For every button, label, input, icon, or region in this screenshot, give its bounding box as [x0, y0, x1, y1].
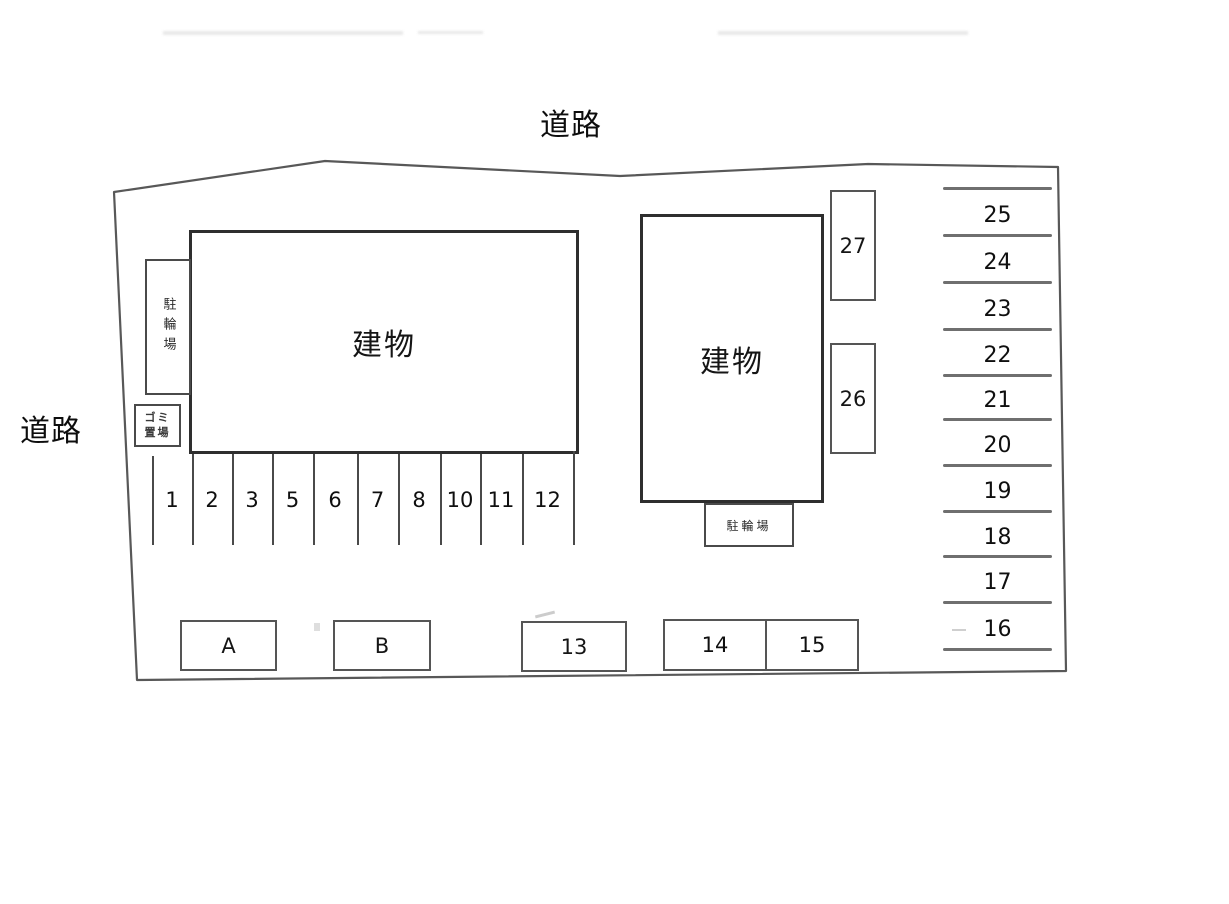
- parking-space-19: 19: [943, 467, 1052, 513]
- bicycle-parking-2: 駐輪場: [704, 503, 794, 547]
- parking-space-11: 11: [482, 455, 520, 545]
- bicycle-parking-1-label: 駐輪場: [159, 297, 178, 357]
- parking-space-A-label: A: [221, 634, 235, 658]
- parking-space-14-15: 14 15: [663, 619, 859, 671]
- parking-divider-line: [573, 451, 575, 545]
- parking-space-26-label: 26: [840, 387, 867, 411]
- parking-space-13-label: 13: [561, 635, 588, 659]
- parking-space-26: 26: [830, 343, 876, 454]
- building-1: 建物: [189, 230, 579, 454]
- parking-space-21: 21: [943, 377, 1052, 421]
- garbage-area: ゴミ 置場: [134, 404, 181, 447]
- parking-space-27: 27: [830, 190, 876, 301]
- parking-space-A: A: [180, 620, 277, 671]
- building-2-label: 建物: [700, 337, 764, 381]
- parking-space-B: B: [333, 620, 431, 671]
- parking-space-8: 8: [400, 455, 438, 545]
- building-1-label: 建物: [352, 320, 416, 364]
- parking-space-24: 24: [943, 237, 1052, 284]
- parking-space-10: 10: [442, 455, 478, 545]
- garbage-area-label-line2: 置場: [145, 426, 171, 441]
- parking-space-13: 13: [521, 621, 627, 672]
- parking-space-18: 18: [943, 513, 1052, 558]
- garbage-area-label-line1: ゴミ: [145, 411, 171, 426]
- road-label-top: 道路: [540, 100, 602, 144]
- site-plan: 道路 道路 建物 建物 駐輪場 ゴミ 置場 駐輪場 27 26 1 2 3: [0, 0, 1229, 904]
- parking-space-15: 15: [767, 621, 857, 669]
- parking-space-23: 23: [943, 284, 1052, 331]
- parking-space-20: 20: [943, 421, 1052, 467]
- parking-space-6: 6: [315, 455, 355, 545]
- parking-space-7: 7: [359, 455, 396, 545]
- parking-space-25: 25: [943, 190, 1052, 237]
- bicycle-parking-1: 駐輪場: [145, 259, 191, 395]
- parking-space-27-label: 27: [840, 234, 867, 258]
- parking-space-14: 14: [665, 621, 765, 669]
- parking-space-12: 12: [524, 455, 571, 545]
- parking-space-1: 1: [154, 455, 190, 545]
- road-label-left: 道路: [20, 406, 82, 450]
- bicycle-parking-2-label: 駐輪場: [726, 517, 771, 534]
- parking-space-16: 16: [943, 604, 1052, 651]
- building-2: 建物: [640, 214, 824, 503]
- parking-space-5: 5: [274, 455, 311, 545]
- parking-space-B-label: B: [375, 634, 389, 658]
- parking-space-3: 3: [234, 455, 270, 545]
- parking-space-2: 2: [194, 455, 230, 545]
- parking-space-22: 22: [943, 331, 1052, 377]
- parking-space-17: 17: [943, 558, 1052, 604]
